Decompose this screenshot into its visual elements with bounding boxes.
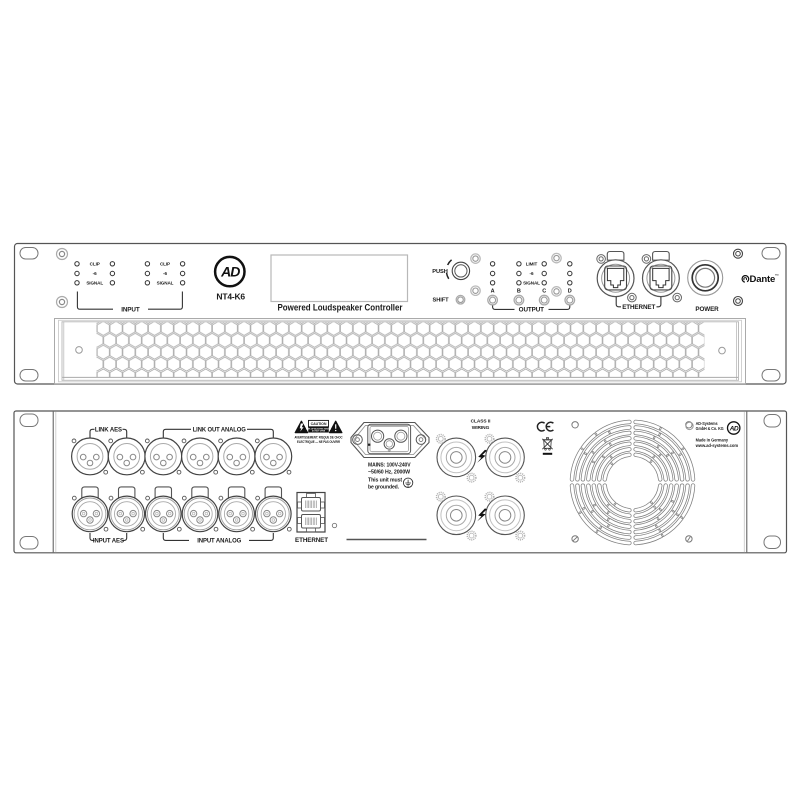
svg-text:B: B (517, 289, 521, 295)
svg-text:INPUT ANALOG: INPUT ANALOG (197, 538, 241, 545)
svg-text:LINK OUT ANALOG: LINK OUT ANALOG (193, 427, 246, 434)
svg-text:ETHERNET: ETHERNET (622, 304, 655, 311)
svg-text:SHIFT: SHIFT (433, 298, 450, 304)
svg-text:WIRING: WIRING (472, 425, 490, 431)
svg-text:CLASS II: CLASS II (471, 418, 492, 424)
svg-text:PUSH: PUSH (432, 269, 447, 275)
svg-text:-6: -6 (163, 271, 168, 276)
svg-text:~50/60 Hz, 2000W: ~50/60 Hz, 2000W (368, 469, 410, 475)
svg-text:SIGNAL: SIGNAL (523, 280, 540, 285)
svg-text:INPUT: INPUT (121, 306, 140, 313)
svg-text:INPUT AES: INPUT AES (93, 538, 124, 545)
svg-text:ETHERNET: ETHERNET (295, 537, 328, 544)
svg-text:be grounded.: be grounded. (368, 484, 400, 490)
svg-text:This unit must: This unit must (368, 478, 402, 484)
svg-text:D: D (568, 289, 572, 295)
svg-text:A: A (491, 289, 495, 295)
svg-text:AD: AD (220, 264, 240, 280)
svg-text:LINK AES: LINK AES (95, 427, 122, 434)
svg-text:POWER: POWER (695, 306, 719, 313)
svg-text:www.ad-systems.com: www.ad-systems.com (695, 443, 739, 448)
svg-text:ELECTRIQUE — NE PAS OUVRIR: ELECTRIQUE — NE PAS OUVRIR (297, 440, 340, 444)
svg-text:NT4-K6: NT4-K6 (216, 292, 245, 301)
svg-text:™: ™ (775, 273, 779, 278)
svg-text:CLIP: CLIP (90, 261, 100, 266)
svg-text:Powered Loudspeaker Controller: Powered Loudspeaker Controller (278, 303, 403, 314)
svg-text:GmbH & Co. KG: GmbH & Co. KG (696, 426, 724, 431)
svg-text:MAINS: 100V-240V: MAINS: 100V-240V (368, 463, 411, 469)
svg-text:AVERTISSEMENT: RISQUE DE CHOC: AVERTISSEMENT: RISQUE DE CHOC (295, 436, 343, 440)
svg-text:SIGNAL: SIGNAL (157, 280, 174, 285)
svg-text:LIMIT: LIMIT (526, 261, 538, 266)
svg-text:Made in Germany: Made in Germany (696, 437, 729, 442)
svg-text:-6: -6 (93, 271, 98, 276)
svg-text:CAUTION: CAUTION (311, 422, 327, 426)
svg-text:DO NOT OPEN: DO NOT OPEN (312, 431, 326, 433)
svg-text:SIGNAL: SIGNAL (86, 280, 103, 285)
svg-text:AD: AD (729, 425, 739, 432)
svg-text:-6: -6 (529, 271, 534, 276)
svg-text:CLIP: CLIP (160, 261, 170, 266)
svg-text:C: C (542, 289, 546, 295)
svg-text:OUTPUT: OUTPUT (519, 307, 545, 314)
svg-text:Dante: Dante (750, 273, 776, 284)
